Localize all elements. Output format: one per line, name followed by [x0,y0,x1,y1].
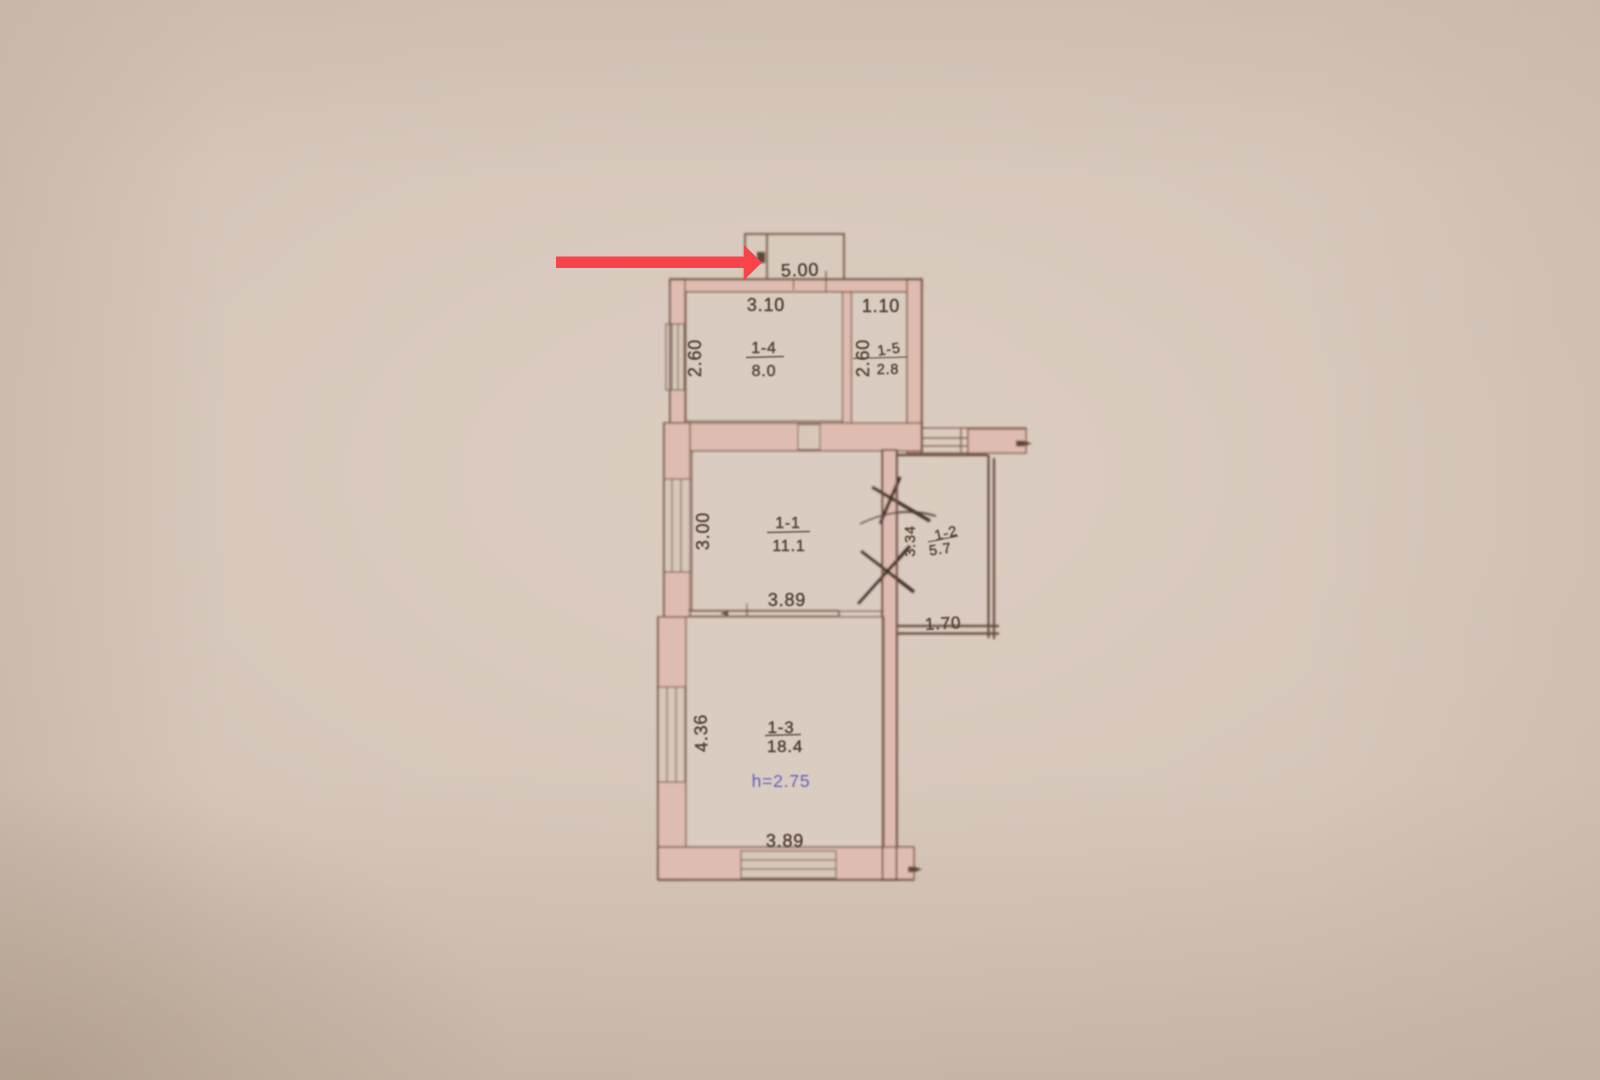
svg-text:11.1: 11.1 [772,538,805,555]
svg-text:h=2.75: h=2.75 [752,771,811,791]
svg-text:18.4: 18.4 [767,737,803,756]
svg-text:2.8: 2.8 [877,362,900,378]
svg-text:4.36: 4.36 [690,714,711,753]
svg-text:3.34: 3.34 [903,525,919,556]
svg-text:1.70: 1.70 [925,613,962,634]
svg-text:3.89: 3.89 [766,831,804,851]
svg-text:1.10: 1.10 [862,296,900,316]
svg-text:2.60: 2.60 [685,339,705,377]
svg-text:3.89: 3.89 [768,590,806,610]
svg-text:3.00: 3.00 [693,512,713,550]
svg-text:1-1: 1-1 [775,515,801,532]
svg-text:1-4: 1-4 [751,340,777,357]
svg-text:5.00: 5.00 [781,259,820,280]
svg-text:3.10: 3.10 [747,295,785,315]
svg-text:1-5: 1-5 [876,340,901,359]
svg-text:8.0: 8.0 [752,363,777,380]
svg-text:5.7: 5.7 [928,540,953,559]
